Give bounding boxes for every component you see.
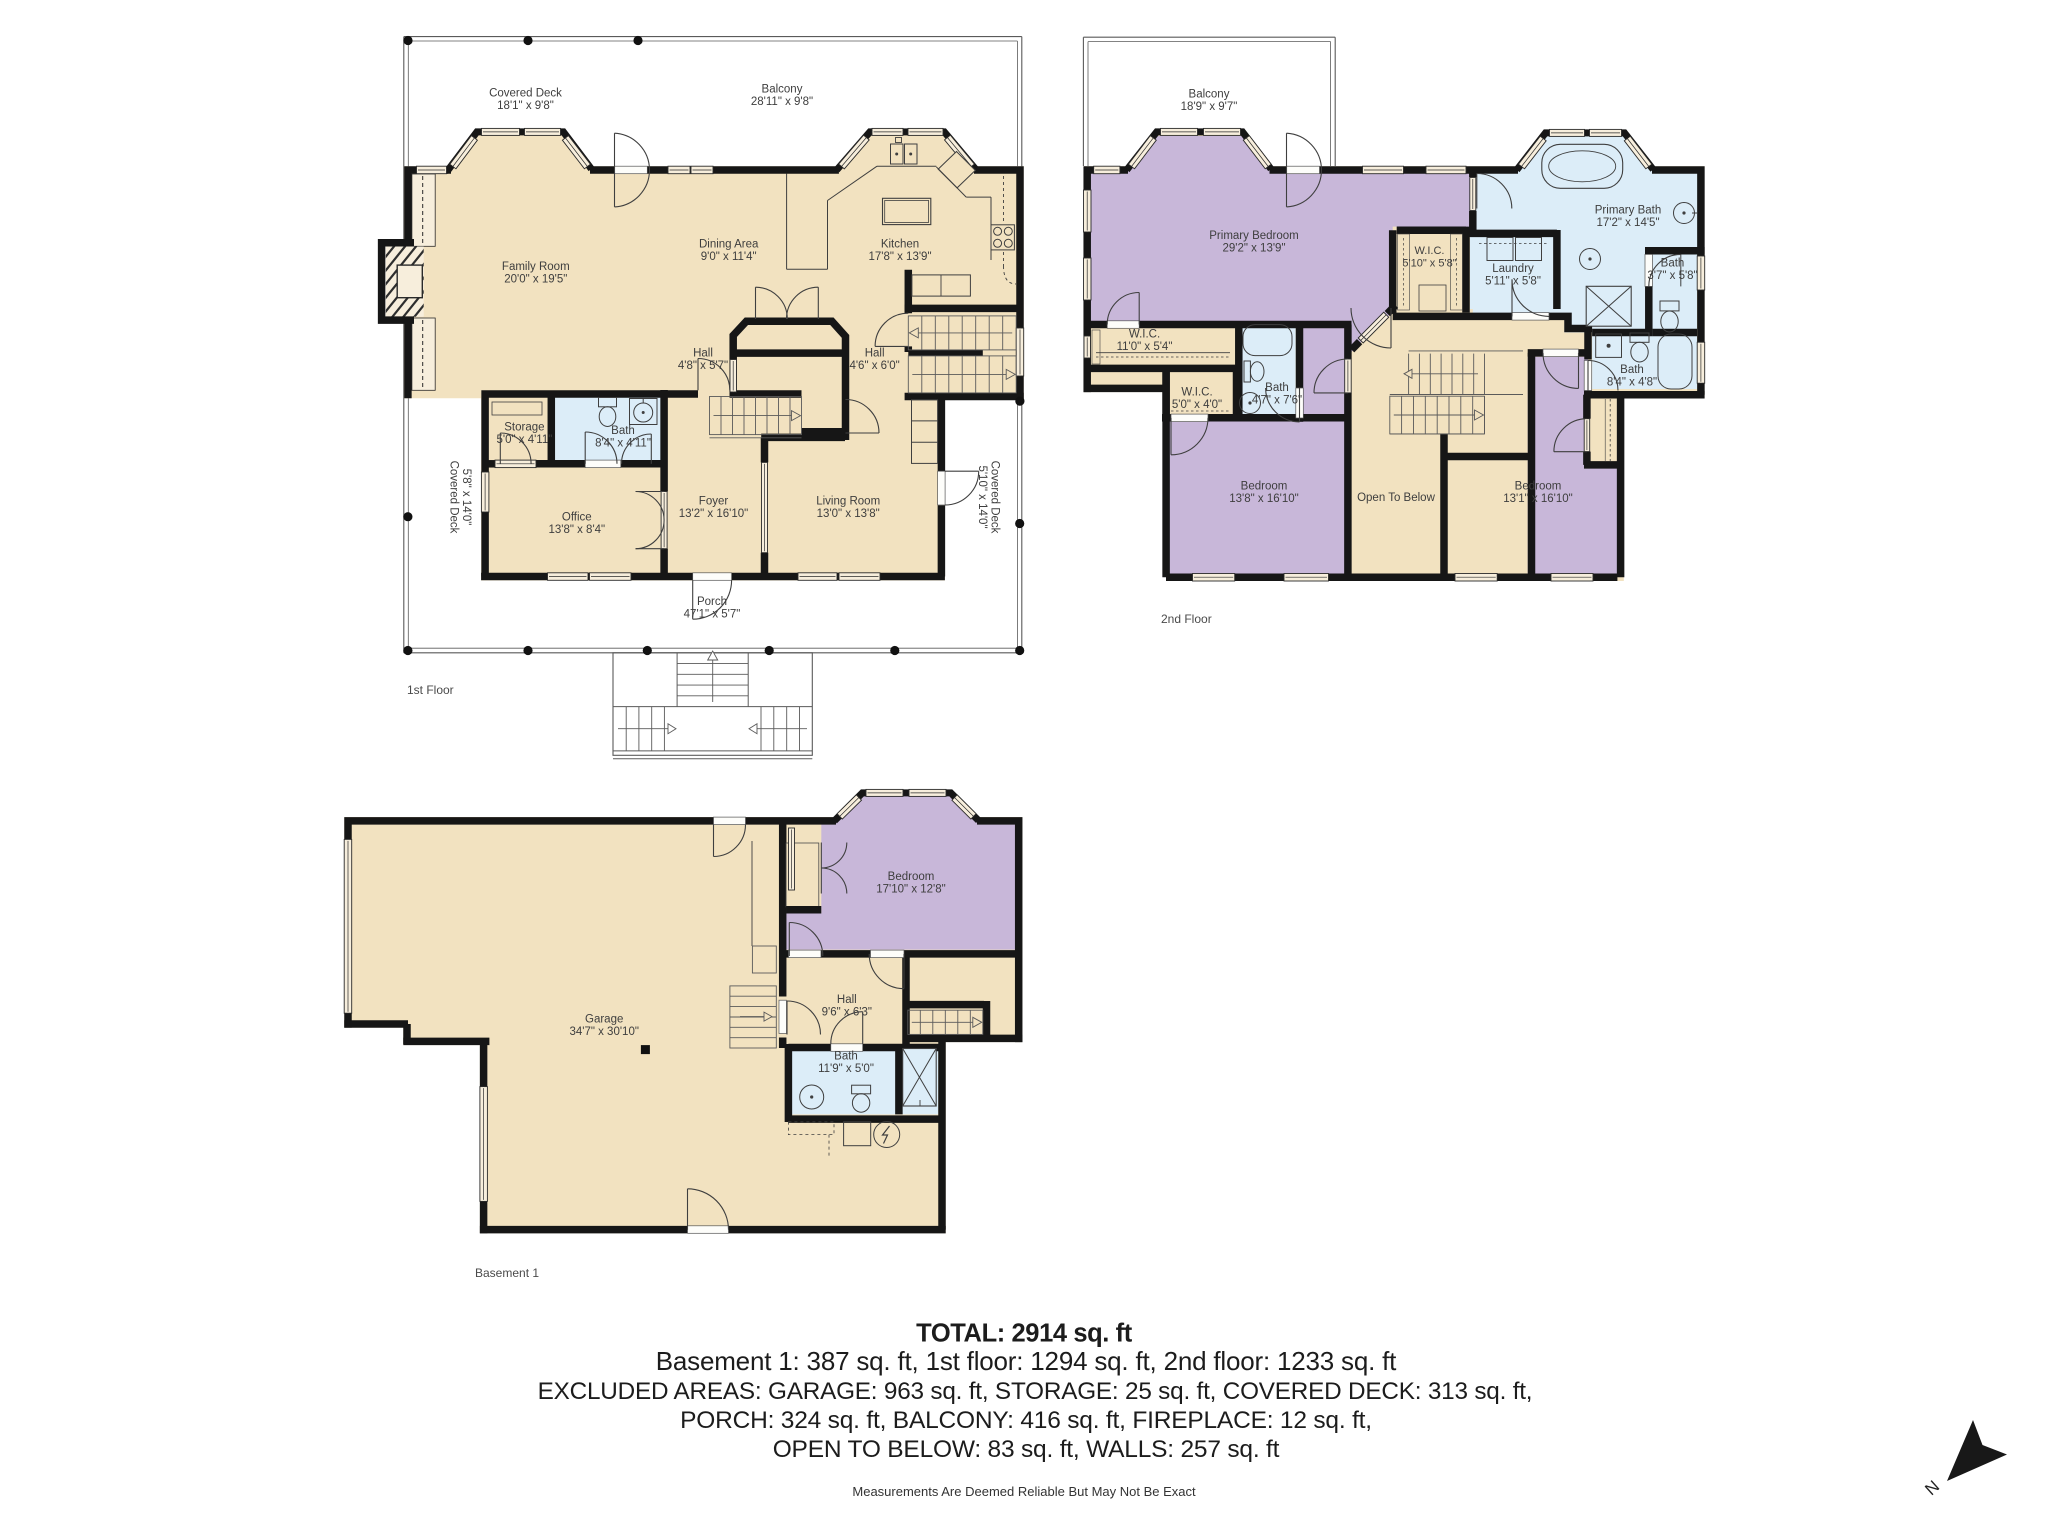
svg-text:Hall: Hall — [865, 347, 885, 359]
svg-text:Laundry: Laundry — [1492, 263, 1534, 275]
svg-text:8'4" x 4'11": 8'4" x 4'11" — [595, 438, 651, 450]
svg-text:Basement 1: Basement 1 — [475, 1266, 539, 1280]
svg-text:34'7" x 30'10": 34'7" x 30'10" — [569, 1026, 638, 1038]
svg-text:Bath: Bath — [1661, 258, 1685, 270]
svg-text:Bath: Bath — [611, 425, 635, 437]
svg-text:Basement 1: 387 sq. ft, 1st fl: Basement 1: 387 sq. ft, 1st floor: 1294 … — [656, 1346, 1397, 1376]
svg-text:13'1" x 16'10": 13'1" x 16'10" — [1503, 493, 1572, 505]
svg-text:Family Room: Family Room — [502, 261, 570, 273]
svg-text:5'10" x 14'0": 5'10" x 14'0" — [976, 465, 988, 528]
svg-text:Bath: Bath — [834, 1051, 858, 1063]
svg-text:18'1" x 9'8": 18'1" x 9'8" — [497, 100, 554, 112]
svg-text:28'11" x 9'8": 28'11" x 9'8" — [751, 96, 813, 108]
svg-text:PORCH: 324 sq. ft, BALCONY: 41: PORCH: 324 sq. ft, BALCONY: 416 sq. ft, … — [680, 1407, 1372, 1434]
svg-text:3'7" x 5'8": 3'7" x 5'8" — [1647, 270, 1697, 282]
svg-text:5'8" x 14'0": 5'8" x 14'0" — [460, 469, 472, 526]
svg-text:4'7" x 7'6": 4'7" x 7'6" — [1252, 395, 1302, 407]
svg-text:18'9" x 9'7": 18'9" x 9'7" — [1181, 101, 1238, 113]
svg-text:5'0" x 4'0": 5'0" x 4'0" — [1172, 399, 1222, 411]
svg-text:13'2" x 16'10": 13'2" x 16'10" — [679, 508, 748, 520]
svg-text:W.I.C.: W.I.C. — [1129, 329, 1160, 341]
svg-text:8'4" x 4'8": 8'4" x 4'8" — [1607, 377, 1657, 389]
svg-text:9'0" x 11'4": 9'0" x 11'4" — [701, 251, 757, 263]
svg-text:Primary Bedroom: Primary Bedroom — [1209, 230, 1298, 242]
svg-text:Balcony: Balcony — [762, 84, 803, 96]
svg-text:47'1" x 5'7": 47'1" x 5'7" — [684, 609, 741, 621]
svg-text:EXCLUDED AREAS: GARAGE: 963 sq: EXCLUDED AREAS: GARAGE: 963 sq. ft, STOR… — [538, 1378, 1533, 1405]
svg-text:W.I.C.: W.I.C. — [1181, 387, 1212, 399]
svg-text:OPEN TO BELOW: 83 sq. ft, WALL: OPEN TO BELOW: 83 sq. ft, WALLS: 257 sq.… — [773, 1436, 1280, 1463]
svg-text:9'6" x 6'3": 9'6" x 6'3" — [822, 1007, 872, 1019]
svg-text:29'2" x 13'9": 29'2" x 13'9" — [1222, 243, 1285, 255]
svg-text:Measurements Are Deemed Reliab: Measurements Are Deemed Reliable But May… — [852, 1484, 1196, 1499]
svg-text:Balcony: Balcony — [1189, 89, 1230, 101]
svg-text:Bath: Bath — [1620, 364, 1644, 376]
svg-text:13'0" x 13'8": 13'0" x 13'8" — [817, 508, 880, 520]
svg-text:11'0" x 5'4": 11'0" x 5'4" — [1117, 341, 1173, 353]
svg-text:Covered Deck: Covered Deck — [989, 461, 1001, 534]
svg-text:11'9" x 5'0": 11'9" x 5'0" — [818, 1063, 874, 1075]
svg-text:4'8" x 5'7": 4'8" x 5'7" — [678, 360, 728, 372]
svg-text:20'0" x 19'5": 20'0" x 19'5" — [504, 274, 567, 286]
svg-text:Bedroom: Bedroom — [888, 871, 935, 883]
svg-text:Dining Area: Dining Area — [699, 239, 759, 251]
svg-text:Hall: Hall — [837, 994, 857, 1006]
svg-text:5'0" x 4'11": 5'0" x 4'11" — [496, 434, 552, 446]
svg-text:Bedroom: Bedroom — [1241, 481, 1288, 493]
svg-text:Porch: Porch — [697, 596, 727, 608]
svg-text:Storage: Storage — [504, 422, 544, 434]
svg-text:Kitchen: Kitchen — [881, 239, 919, 251]
svg-text:TOTAL: 2914 sq. ft: TOTAL: 2914 sq. ft — [916, 1320, 1133, 1348]
svg-text:1st Floor: 1st Floor — [407, 683, 454, 697]
svg-text:13'8" x 8'4": 13'8" x 8'4" — [548, 524, 605, 536]
svg-text:Covered Deck: Covered Deck — [489, 88, 562, 100]
svg-text:Office: Office — [562, 512, 592, 524]
svg-text:4'6" x 6'0": 4'6" x 6'0" — [849, 360, 899, 372]
svg-text:17'10" x 12'8": 17'10" x 12'8" — [876, 884, 945, 896]
svg-text:Covered Deck: Covered Deck — [448, 461, 460, 534]
svg-text:Bedroom: Bedroom — [1515, 481, 1562, 493]
svg-text:Garage: Garage — [585, 1014, 623, 1026]
svg-text:Hall: Hall — [693, 347, 713, 359]
svg-text:Open To Below: Open To Below — [1357, 492, 1435, 504]
svg-text:Bath: Bath — [1265, 382, 1289, 394]
svg-text:W.I.C.: W.I.C. — [1415, 245, 1445, 257]
svg-text:5'10" x 5'8": 5'10" x 5'8" — [1402, 258, 1456, 270]
svg-text:17'8" x 13'9": 17'8" x 13'9" — [868, 251, 931, 263]
svg-text:2nd Floor: 2nd Floor — [1161, 612, 1212, 626]
svg-text:Living Room: Living Room — [816, 496, 880, 508]
svg-text:5'11" x 5'8": 5'11" x 5'8" — [1485, 276, 1541, 288]
svg-text:17'2" x 14'5": 17'2" x 14'5" — [1596, 217, 1659, 229]
svg-text:Foyer: Foyer — [699, 496, 729, 508]
svg-text:13'8" x 16'10": 13'8" x 16'10" — [1229, 493, 1298, 505]
svg-text:Primary Bath: Primary Bath — [1595, 205, 1661, 217]
